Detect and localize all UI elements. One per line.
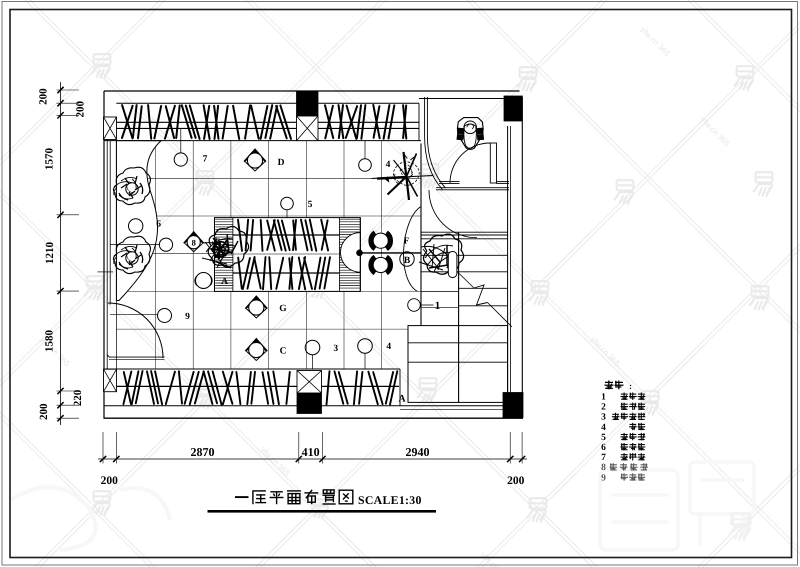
- svg-text:8: 8: [601, 463, 606, 473]
- svg-text:2870: 2870: [191, 445, 215, 459]
- svg-text:1570: 1570: [44, 148, 56, 171]
- svg-text:220: 220: [72, 389, 84, 406]
- svg-text:9: 9: [601, 473, 606, 483]
- svg-text:B: B: [404, 256, 411, 266]
- svg-text:3: 3: [601, 413, 606, 423]
- svg-text:6: 6: [601, 443, 606, 453]
- svg-text:1: 1: [435, 300, 441, 312]
- svg-text:4: 4: [386, 342, 391, 352]
- svg-text:C: C: [280, 346, 287, 356]
- svg-text:5: 5: [601, 433, 606, 443]
- svg-text:200: 200: [75, 101, 87, 118]
- svg-text:SCALE1:30: SCALE1:30: [358, 493, 422, 507]
- svg-text:1: 1: [601, 393, 606, 403]
- svg-text:1580: 1580: [44, 330, 56, 353]
- svg-text:G: G: [279, 304, 287, 314]
- svg-text:A: A: [221, 277, 228, 287]
- svg-text:2: 2: [601, 403, 606, 413]
- svg-text:9: 9: [185, 312, 190, 322]
- svg-text:200: 200: [38, 88, 50, 105]
- svg-text:3: 3: [333, 344, 338, 354]
- svg-text:E: E: [215, 236, 221, 246]
- svg-text::: :: [629, 381, 632, 391]
- svg-text:200: 200: [38, 403, 50, 420]
- svg-text:7: 7: [203, 155, 208, 165]
- svg-text:4: 4: [601, 423, 606, 433]
- svg-text:200: 200: [507, 475, 525, 487]
- svg-text:6: 6: [156, 220, 161, 230]
- svg-text:410: 410: [302, 445, 320, 459]
- svg-text:1210: 1210: [44, 242, 56, 265]
- svg-text:4: 4: [386, 160, 391, 170]
- svg-text:2940: 2940: [406, 445, 430, 459]
- svg-text:200: 200: [101, 475, 119, 487]
- svg-text:D: D: [278, 158, 285, 168]
- svg-text:5: 5: [308, 200, 313, 210]
- svg-text:F: F: [404, 236, 410, 246]
- svg-text:A: A: [398, 393, 406, 404]
- svg-text:8: 8: [192, 237, 196, 247]
- svg-text:7: 7: [601, 453, 606, 463]
